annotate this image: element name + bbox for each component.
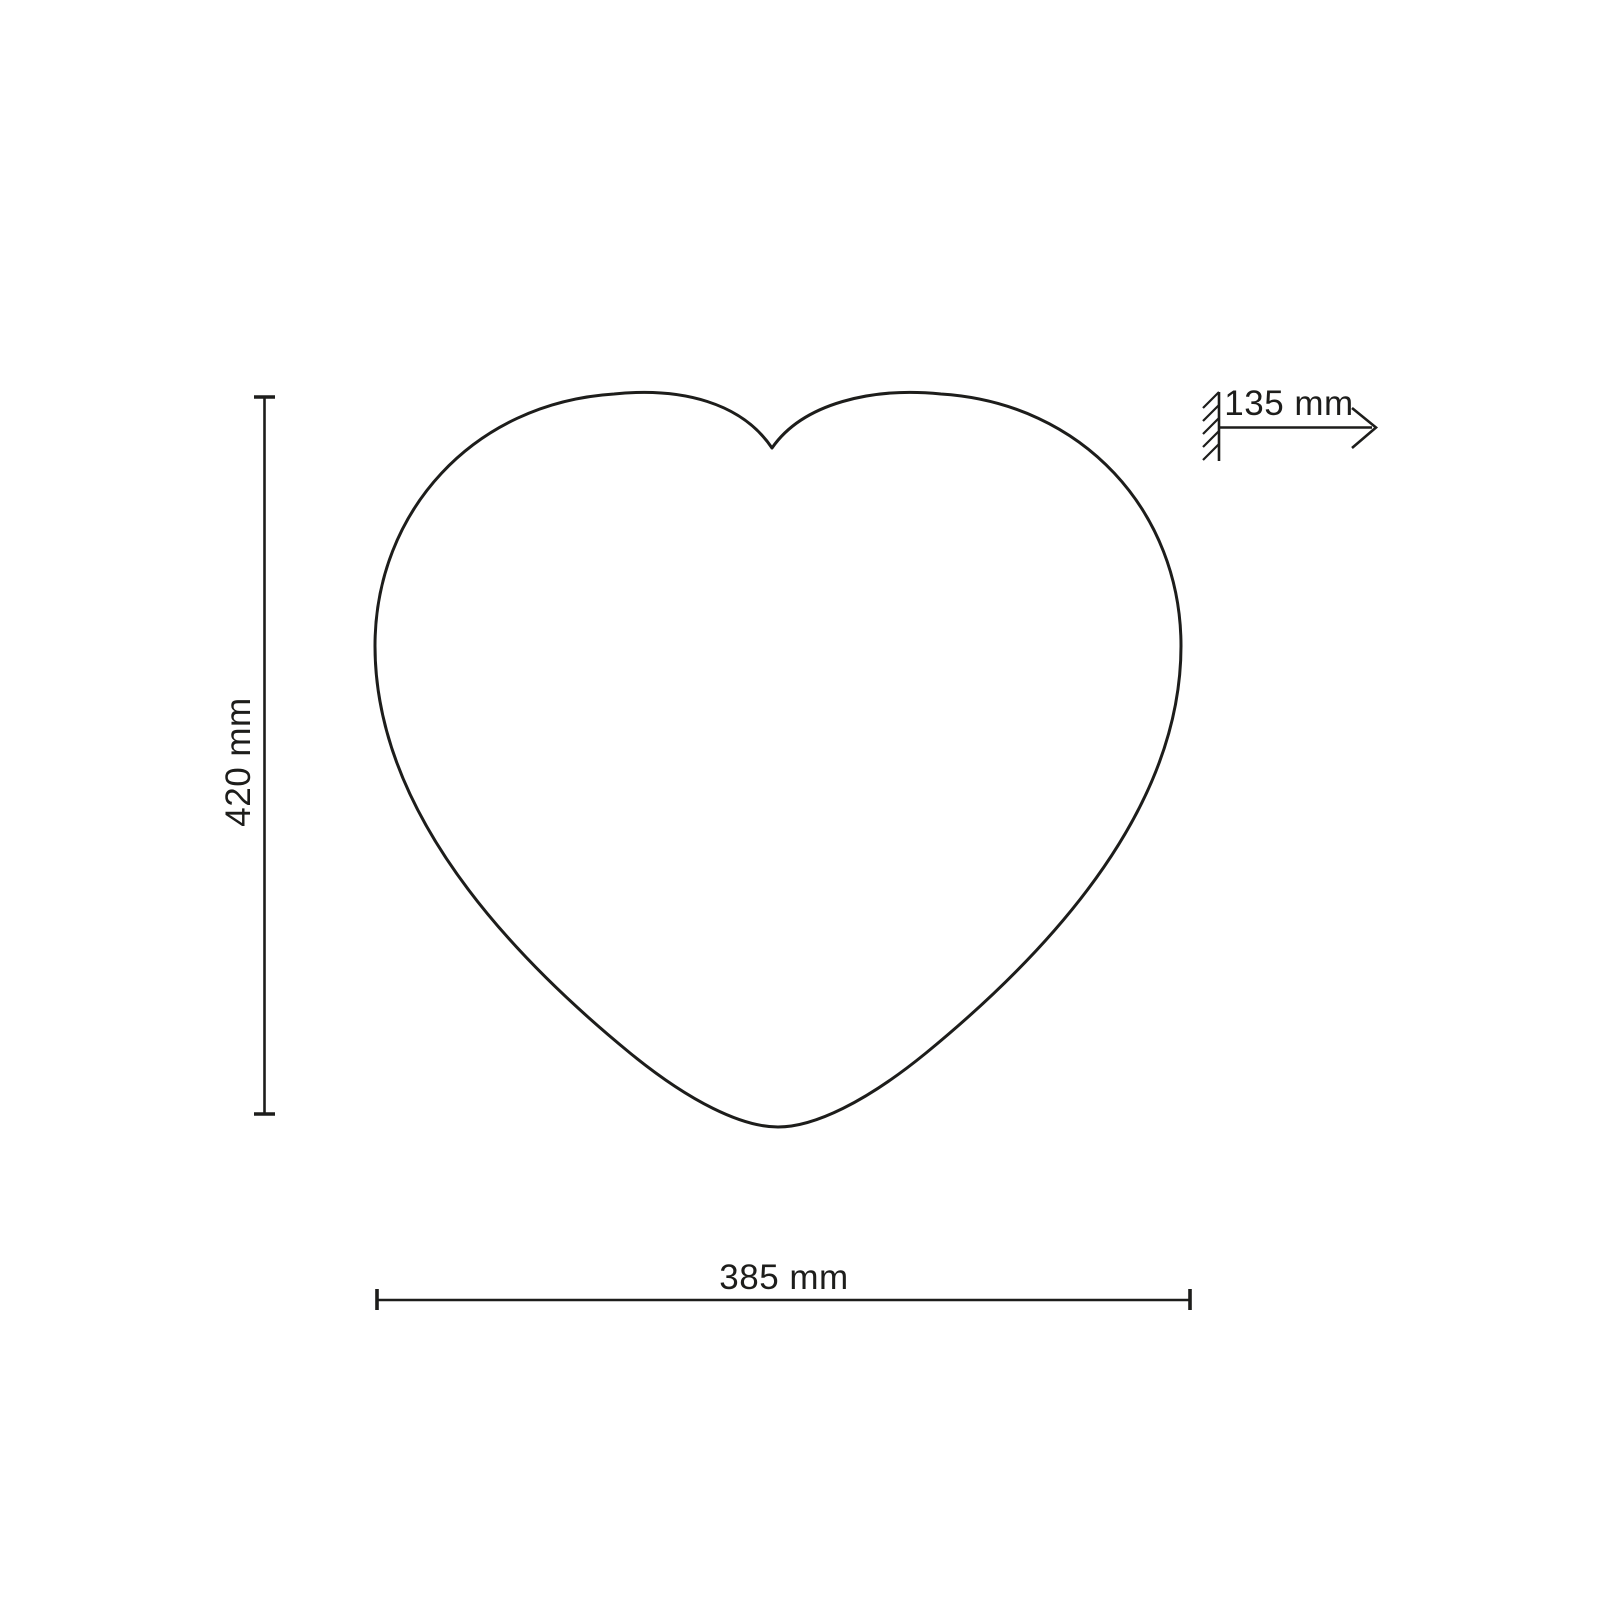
depth-dimension-label: 135 mm xyxy=(1224,384,1353,423)
height-dimension-label: 420 mm xyxy=(219,697,258,826)
dimension-labels: 420 mm 385 mm 135 mm xyxy=(219,384,1354,1297)
width-dimension-label: 385 mm xyxy=(719,1258,848,1297)
wall-hatch-icon xyxy=(1203,392,1219,460)
heart-outline-icon xyxy=(375,392,1181,1127)
dimension-drawing-page: 420 mm 385 mm 135 mm xyxy=(0,0,1600,1600)
drawing-strokes xyxy=(254,392,1376,1310)
heart-dimension-diagram: 420 mm 385 mm 135 mm xyxy=(0,0,1600,1600)
